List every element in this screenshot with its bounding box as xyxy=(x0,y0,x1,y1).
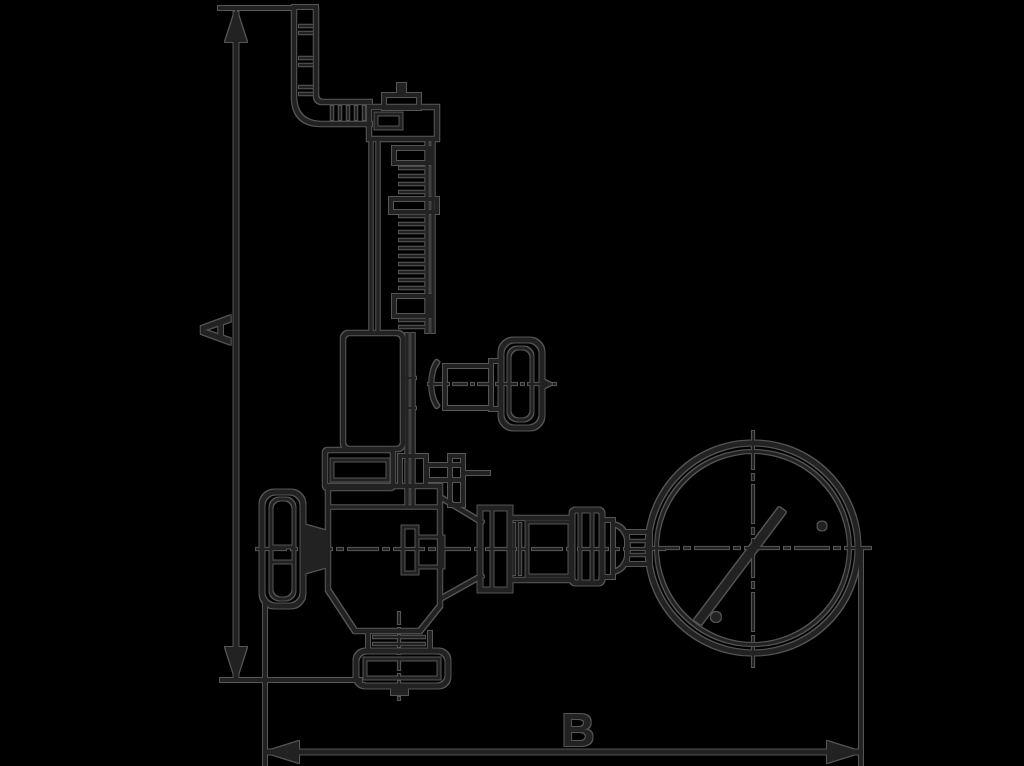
figure-canvas: A B xyxy=(0,0,1024,766)
dim-a-label: A xyxy=(192,314,241,346)
bottom-stub xyxy=(391,686,408,695)
dim-b-label: B xyxy=(561,704,594,756)
gauge-stop-pin-high xyxy=(818,522,827,531)
gauge-stop-pin-low xyxy=(711,612,721,622)
valve-technical-drawing: A B xyxy=(0,0,1024,766)
